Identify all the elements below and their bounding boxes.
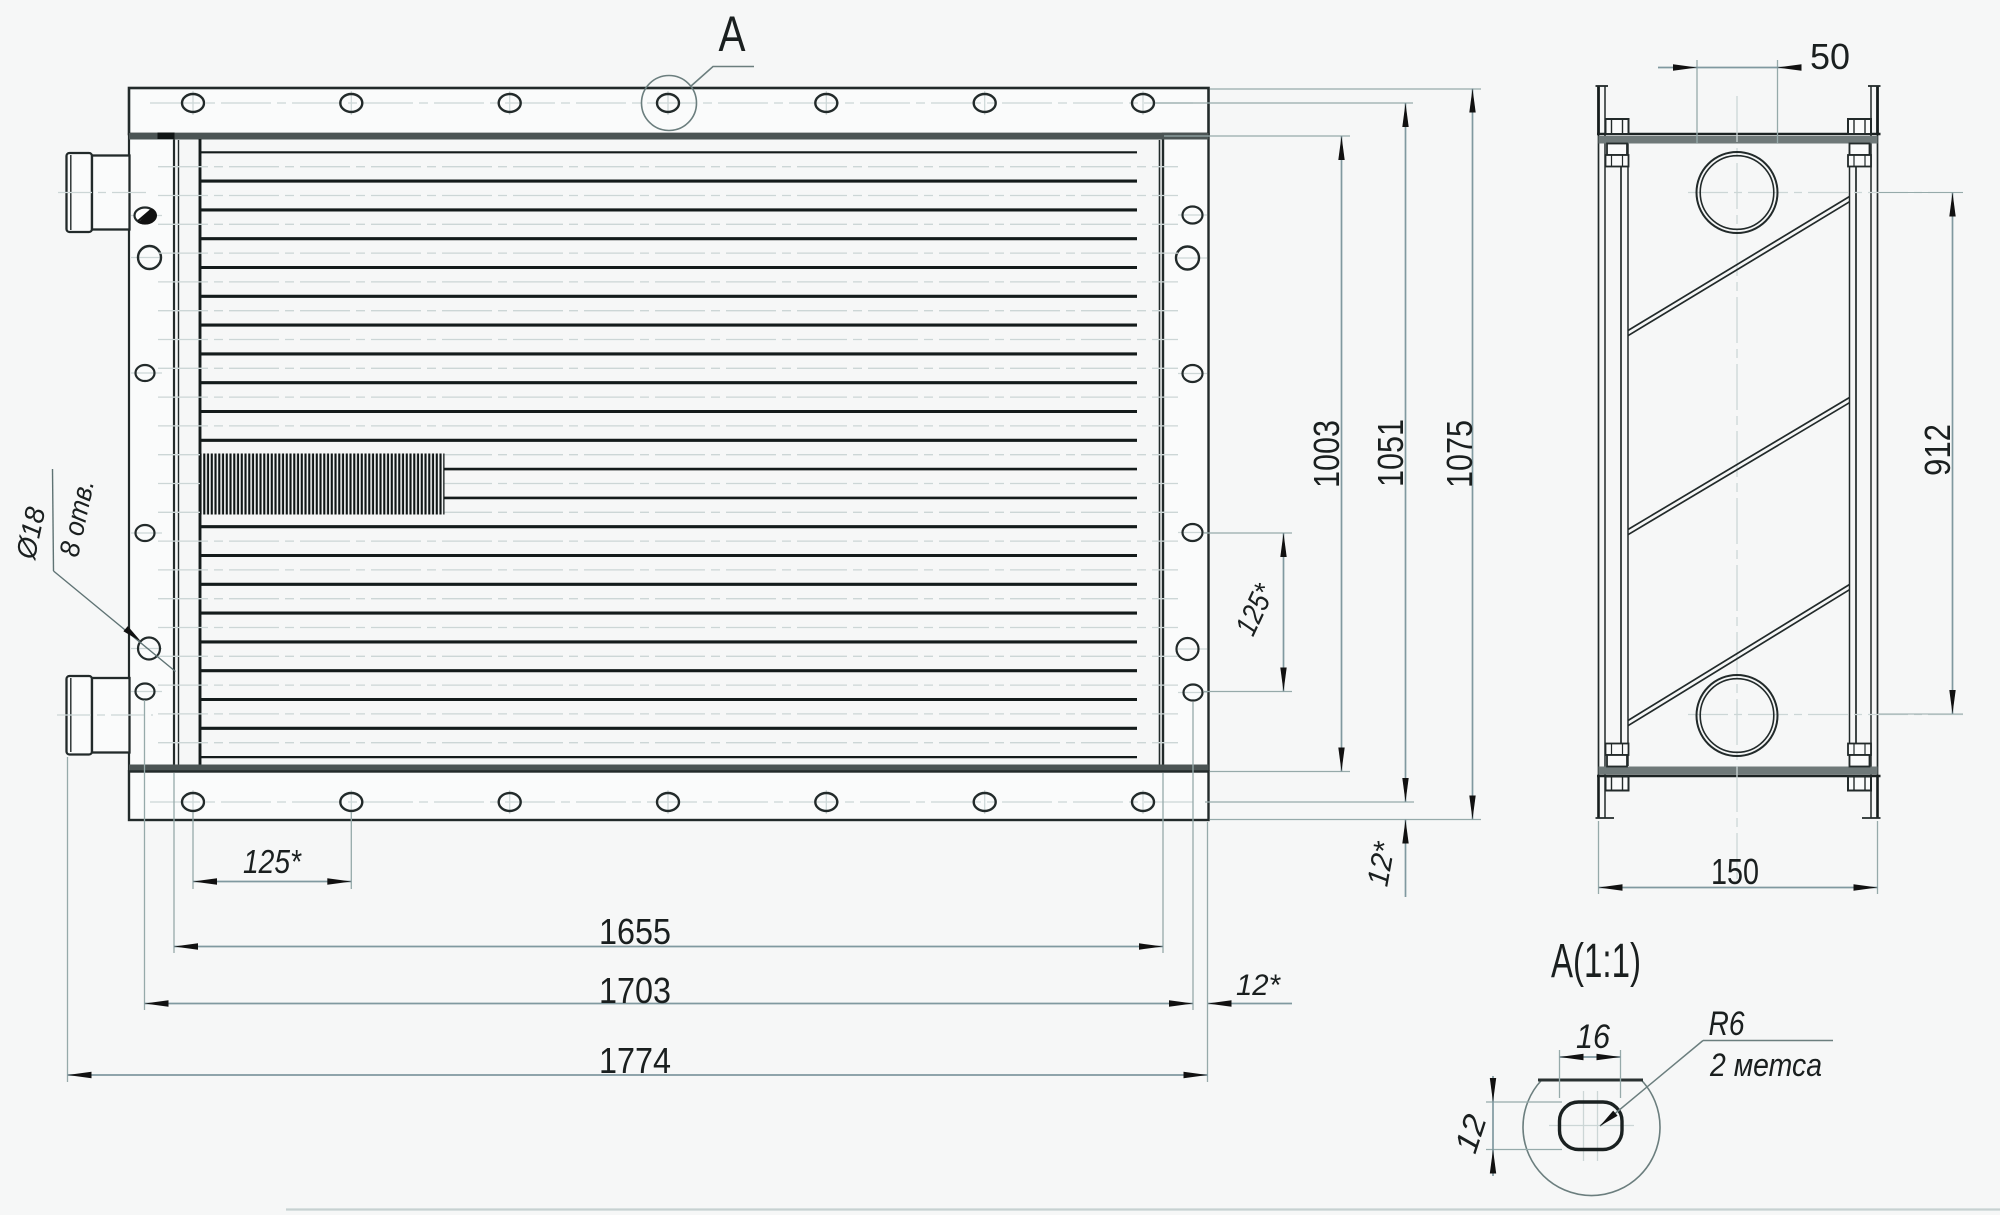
svg-text:1051: 1051 — [1370, 419, 1411, 487]
svg-text:150: 150 — [1711, 851, 1759, 892]
svg-text:125*: 125* — [243, 843, 302, 880]
svg-text:R6: R6 — [1709, 1005, 1745, 1043]
svg-text:2 метса: 2 метса — [1709, 1047, 1822, 1083]
svg-text:12*: 12* — [1236, 969, 1281, 1002]
svg-text:1655: 1655 — [599, 911, 671, 952]
svg-text:1075: 1075 — [1439, 420, 1480, 488]
svg-text:1774: 1774 — [599, 1040, 671, 1081]
svg-text:1703: 1703 — [599, 970, 671, 1011]
svg-text:50: 50 — [1810, 36, 1850, 77]
svg-text:912: 912 — [1917, 424, 1958, 476]
svg-text:A(1:1): A(1:1) — [1551, 935, 1641, 988]
svg-text:1003: 1003 — [1306, 420, 1347, 488]
svg-text:A: A — [719, 6, 747, 62]
svg-text:16: 16 — [1576, 1018, 1610, 1056]
